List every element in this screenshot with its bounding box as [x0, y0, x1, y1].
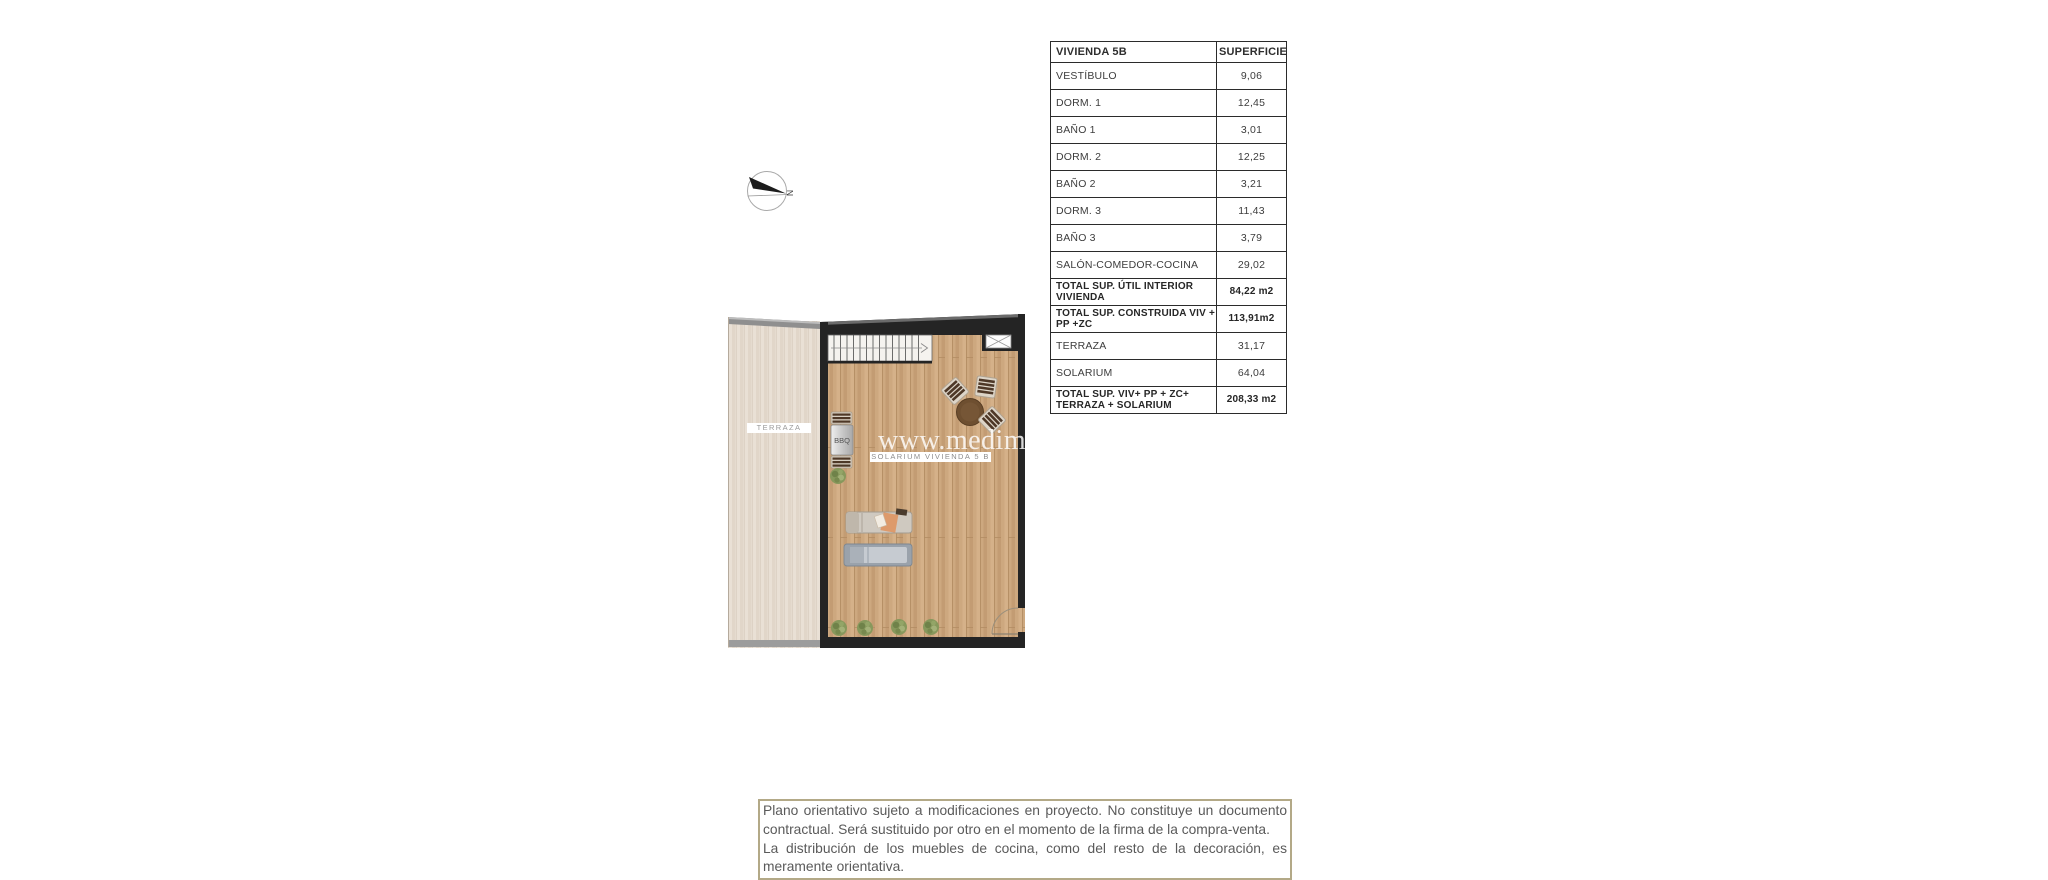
- compass: N: [744, 167, 796, 219]
- disclaimer-paragraph: Plano orientativo sujeto a modificacione…: [763, 802, 1287, 840]
- table-header-name: VIVIENDA 5B: [1051, 42, 1217, 63]
- terraza-floor: [728, 321, 820, 648]
- solarium-floor: [820, 322, 1025, 648]
- surface-area-table: VIVIENDA 5B SUPERFICIE VESTÍBULO 9,06 DO…: [1050, 41, 1287, 414]
- plant: [923, 619, 939, 635]
- patio-chair: [975, 376, 998, 399]
- plant: [830, 468, 846, 484]
- wall-right-upper: [1018, 314, 1025, 608]
- table-row: DORM. 3 11,43: [1051, 198, 1287, 225]
- terraza-label: TERRAZA: [747, 423, 811, 433]
- terraza-parapet-bottom: [728, 640, 820, 647]
- sun-lounger-2: [844, 544, 912, 566]
- table-row: DORM. 1 12,45: [1051, 90, 1287, 117]
- plant: [831, 620, 847, 636]
- table-row: TERRAZA 31,17: [1051, 333, 1287, 360]
- plant: [857, 620, 873, 636]
- sun-lounger-1: [846, 508, 912, 533]
- table-row-total: TOTAL SUP. VIV+ PP + ZC+ TERRAZA + SOLAR…: [1051, 387, 1287, 414]
- wall-left: [820, 322, 828, 648]
- page: N: [0, 0, 2048, 880]
- disclaimer-paragraph: La distribución de los muebles de cocina…: [763, 840, 1287, 878]
- vent-marker-icon: [986, 335, 1011, 348]
- table-row-total: TOTAL SUP. CONSTRUIDA VIV + PP +ZC 113,9…: [1051, 306, 1287, 333]
- solarium-label: SOLARIUM VIVIENDA 5 B: [870, 452, 991, 462]
- table-row: BAÑO 2 3,21: [1051, 171, 1287, 198]
- table-row: SALÓN-COMEDOR-COCINA 29,02: [1051, 252, 1287, 279]
- bbq-label: BBQ: [831, 436, 853, 446]
- table-row: BAÑO 1 3,01: [1051, 117, 1287, 144]
- stairs: [828, 335, 932, 364]
- north-arrow-icon: [749, 177, 786, 194]
- table-header-row: VIVIENDA 5B SUPERFICIE: [1051, 42, 1287, 63]
- floor-plan: www.medima TERRAZA BBQ SOLARIUM VIVIENDA…: [728, 313, 1025, 648]
- bbq-bench: [831, 456, 852, 468]
- table-header-value: SUPERFICIE: [1217, 42, 1287, 63]
- table-row: SOLARIUM 64,04: [1051, 360, 1287, 387]
- plant: [891, 619, 907, 635]
- compass-circle: [748, 172, 787, 211]
- bbq-bench: [831, 412, 852, 424]
- table-row: VESTÍBULO 9,06: [1051, 63, 1287, 90]
- table-row-total: TOTAL SUP. ÚTIL INTERIOR VIVIENDA 84,22 …: [1051, 279, 1287, 306]
- compass-chord: [748, 195, 789, 197]
- compass-north-label: N: [785, 190, 795, 196]
- floor-plan-drawing: [728, 313, 1025, 648]
- table-row: DORM. 2 12,25: [1051, 144, 1287, 171]
- table-row: BAÑO 3 3,79: [1051, 225, 1287, 252]
- wall-bottom: [820, 637, 1025, 648]
- disclaimer-box: Plano orientativo sujeto a modificacione…: [758, 799, 1292, 880]
